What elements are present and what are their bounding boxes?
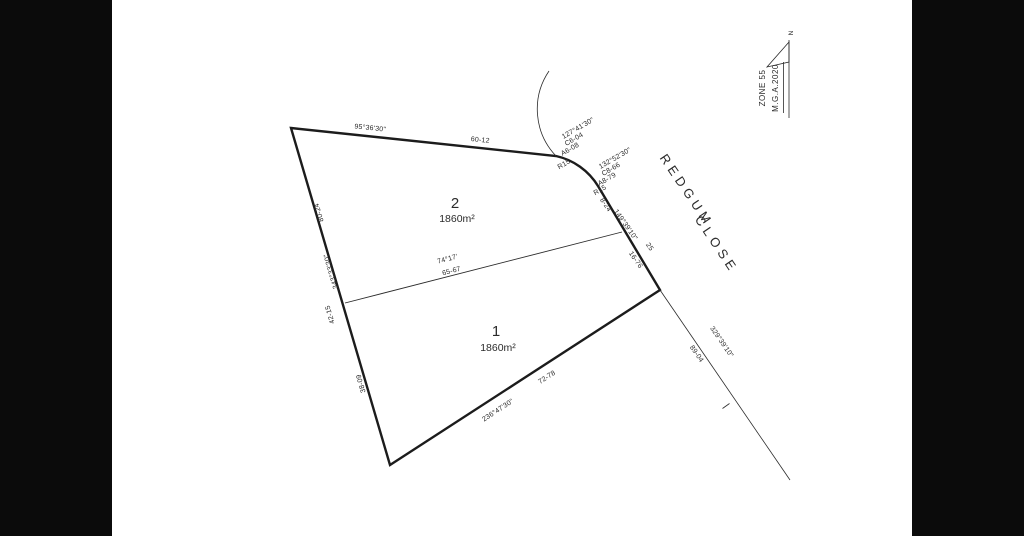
road-edge-line bbox=[660, 290, 790, 480]
left-letterbox-bar bbox=[0, 0, 112, 536]
bottom-boundary-distance-label: 72-78 bbox=[537, 370, 557, 386]
north-arrow: N ZONE 55 M.G.A.2020 bbox=[758, 30, 795, 118]
north-arrow-n-label: N bbox=[788, 30, 795, 35]
north-arrow-flag bbox=[767, 42, 789, 67]
lot1-number-label: 1 bbox=[492, 323, 500, 340]
curve2-radius-label: R15 bbox=[593, 184, 608, 197]
plan-canvas: 95°36'30" 60-12 80-24 343°33'30" 42-15 3… bbox=[112, 0, 912, 536]
right-boundary-bearing-label: 149°39'10" bbox=[612, 208, 639, 242]
right-letterbox-bar bbox=[912, 0, 1024, 536]
left-boundary-lot2-segment-label: 42-15 bbox=[325, 304, 337, 324]
road-frontage-bearing-label: 329°39'10" bbox=[708, 325, 735, 359]
right-boundary-upper-segment-label: 8-24 bbox=[598, 197, 612, 213]
right-boundary-total-label: 25 bbox=[644, 242, 654, 253]
lot1-area-label: 1860m² bbox=[480, 342, 516, 354]
bottom-boundary-bearing-label: 236°47'30" bbox=[481, 397, 516, 423]
survey-plan-page: 95°36'30" 60-12 80-24 343°33'30" 42-15 3… bbox=[0, 0, 1024, 536]
road-edge-tick bbox=[723, 404, 730, 409]
left-boundary-bearing-label: 343°33'30" bbox=[322, 253, 340, 290]
road-name-word2: CLOSE bbox=[692, 213, 742, 277]
datum-label: M.G.A.2020 bbox=[771, 64, 780, 112]
lot-division-line bbox=[345, 232, 622, 303]
lot2-area-label: 1860m² bbox=[439, 213, 475, 225]
road-frontage-distance-label: 89-04 bbox=[688, 344, 704, 364]
top-boundary-bearing-label: 95°36'30" bbox=[354, 122, 387, 133]
left-boundary-total-label: 80-24 bbox=[314, 202, 326, 222]
road-edge-curve bbox=[537, 71, 556, 156]
top-boundary-distance-label: 60-12 bbox=[470, 136, 490, 145]
internal-line-bearing-label: 74°17' bbox=[436, 253, 458, 266]
zone-label: ZONE 55 bbox=[758, 70, 767, 107]
lot2-number-label: 2 bbox=[451, 195, 459, 212]
